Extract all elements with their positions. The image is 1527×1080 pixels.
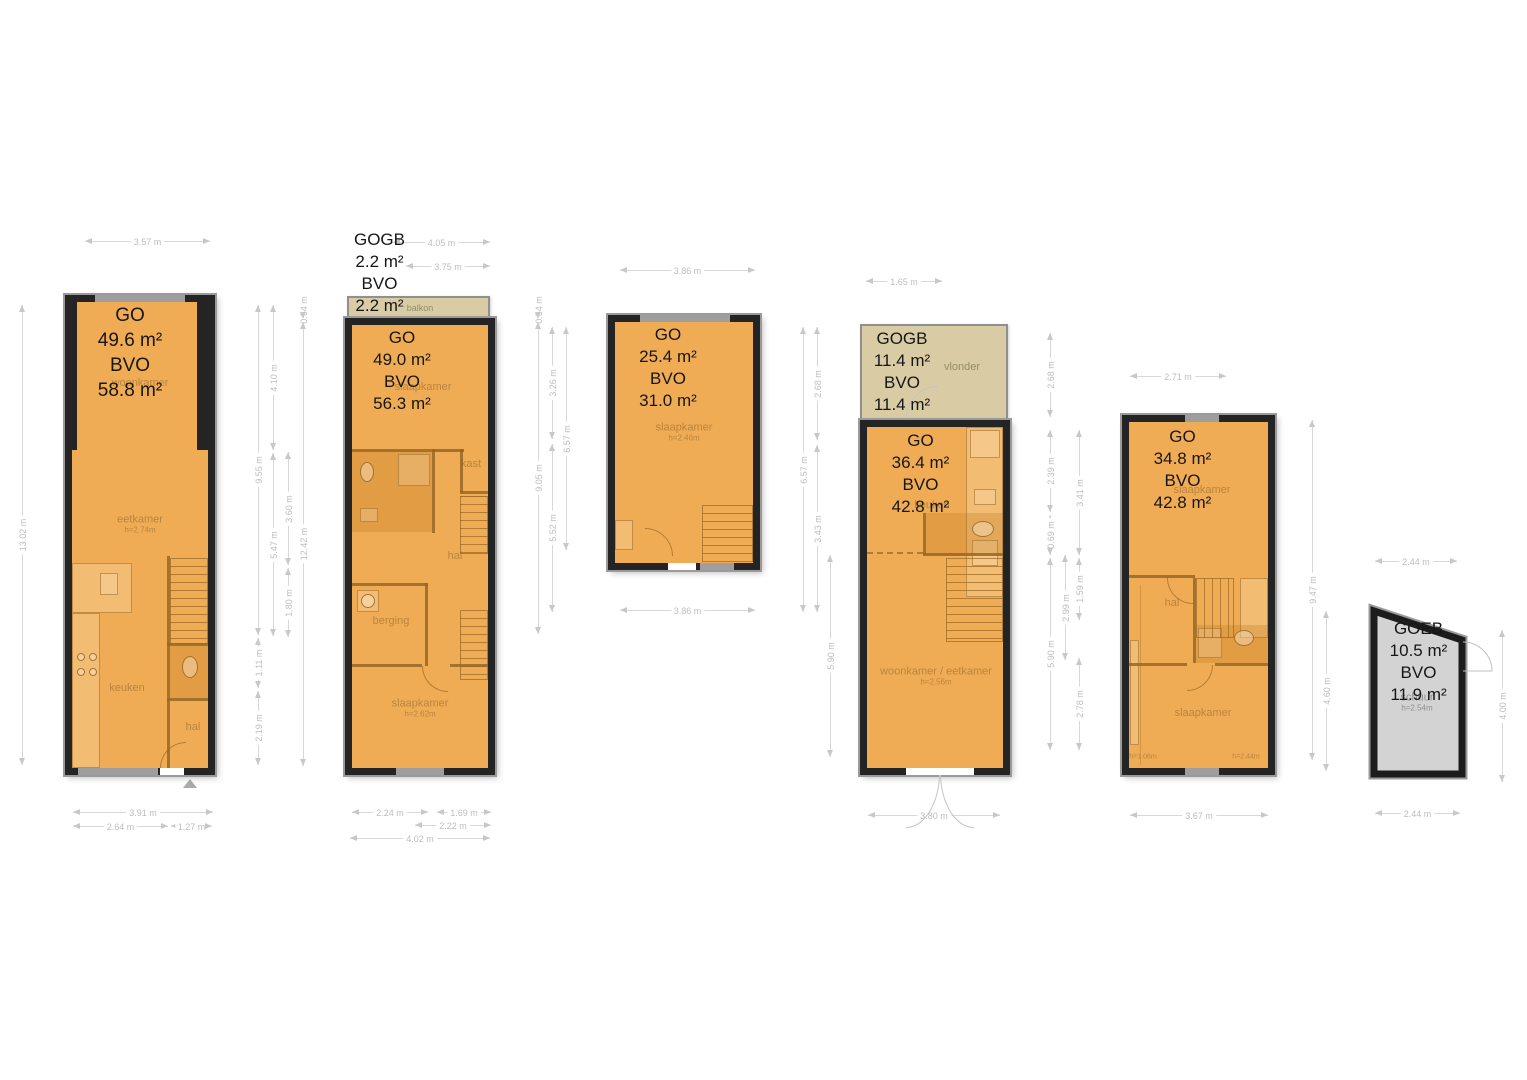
dim-line: 12.42 m	[303, 322, 304, 766]
window	[1185, 415, 1219, 422]
toilet	[360, 462, 374, 482]
dim-line: 1.27 m	[171, 826, 212, 827]
room-height: h=1.06m	[1129, 754, 1156, 761]
room-label-slaapkamer2: slaapkamer	[1175, 707, 1232, 719]
room-label-berging: berging	[373, 615, 410, 627]
kitchen-sink	[974, 489, 996, 505]
dim-line: 4.02 m	[350, 838, 490, 839]
dim-label: 2.64 m	[104, 822, 138, 832]
dim-label: 3.86 m	[671, 266, 705, 276]
partition-wall	[460, 449, 463, 493]
go-label: GO	[80, 303, 180, 328]
window	[640, 315, 730, 322]
partition-wall	[352, 449, 464, 452]
dim-line: 1.65 m	[866, 281, 942, 282]
door-opening	[906, 768, 974, 775]
go-value: 25.4 m²	[618, 346, 718, 368]
bvo-label: BVO	[1376, 662, 1461, 684]
stairs	[946, 558, 1003, 642]
room-label-hal: hal	[186, 721, 201, 733]
stairs	[702, 505, 753, 562]
dim-line: 6.57 m	[566, 327, 567, 550]
partition-wall	[1193, 578, 1196, 663]
dim-line: 0.54 m	[303, 300, 304, 319]
bvo-value: 11.4 m²	[862, 394, 942, 416]
dim-label: 5.52 m	[548, 511, 558, 545]
dim-label: 5.90 m	[826, 639, 836, 673]
partition-wall	[352, 664, 422, 667]
room-name: slaapkamer	[392, 698, 449, 710]
dim-label: 5.47 m	[269, 528, 279, 562]
room-label-slaapkamer: slaapkamerh=2.46m	[656, 422, 713, 443]
stove-burner	[77, 668, 85, 676]
dim-label: 5.90 m	[1046, 637, 1056, 671]
dim-line: 2.24 m	[352, 812, 428, 813]
stairs	[460, 496, 488, 554]
dim-line: 2.78 m	[1079, 658, 1080, 750]
room-label-slaapkamer2: slaapkamerh=2.62m	[392, 698, 449, 719]
cabinet	[615, 520, 633, 550]
dim-line: 3.86 m	[620, 610, 755, 611]
bvo-value: 42.8 m²	[1130, 492, 1235, 514]
go-label: GO	[1130, 426, 1235, 448]
room-name: slaapkamer	[656, 422, 713, 434]
dim-label: 2.44 m	[1401, 809, 1435, 819]
dim-label: 9.05 m	[534, 461, 544, 495]
area-label-plan1: GO 49.6 m² BVO 58.8 m²	[80, 303, 180, 403]
dim-line: 2.68 m	[1050, 333, 1051, 417]
dim-label: 13.02 m	[18, 516, 28, 555]
wall	[72, 302, 77, 450]
stove-burner	[89, 668, 97, 676]
dim-line: 5.90 m	[830, 555, 831, 757]
kitchen-counter	[72, 613, 100, 768]
window	[95, 295, 185, 302]
stairs	[1196, 578, 1234, 638]
room-label-hal: hal	[1165, 597, 1180, 609]
dim-label: 2.78 m	[1075, 687, 1085, 721]
dim-label: 4.00 m	[1498, 689, 1508, 723]
washer-drum	[361, 594, 375, 608]
dim-line: 2.44 m	[1375, 561, 1457, 562]
dim-label: 3.60 m	[284, 492, 294, 526]
partition-wall	[923, 553, 1003, 556]
partition-wall	[432, 449, 435, 533]
toilet	[182, 656, 198, 678]
sink	[360, 508, 378, 522]
dim-label: 2.22 m	[436, 821, 470, 831]
dim-line: 3.57 m	[85, 241, 210, 242]
go-label: GO	[868, 430, 973, 452]
dim-line: 0.54 m	[538, 300, 539, 319]
window	[78, 768, 158, 775]
partition-wall	[167, 698, 208, 701]
room-name: vlonder	[944, 361, 980, 373]
dim-line: 3.26 m	[552, 327, 553, 439]
dim-line: 9.47 m	[1312, 420, 1313, 760]
height-label: h=2.44m	[1232, 754, 1259, 761]
partition-wall	[1215, 663, 1268, 666]
dim-line: 2.19 m	[258, 691, 259, 765]
dim-label: 9.47 m	[1308, 573, 1318, 607]
dim-label: 3.67 m	[1182, 811, 1216, 821]
bvo-label: BVO	[352, 371, 452, 393]
goeb-value: 10.5 m²	[1376, 640, 1461, 662]
area-label-plan4: GO 36.4 m² BVO 42.8 m²	[868, 430, 973, 518]
dim-line: 13.02 m	[22, 305, 23, 765]
area-label-plan5: GO 34.8 m² BVO 42.8 m²	[1130, 426, 1235, 514]
bvo-label: BVO	[80, 353, 180, 378]
room-label-vlonder: vlonder	[944, 361, 980, 373]
room-name: hal	[186, 721, 201, 733]
dim-line: 2.22 m	[415, 825, 491, 826]
go-label: GO	[618, 324, 718, 346]
room-label-kast: kast	[461, 458, 481, 470]
stairs	[460, 610, 488, 680]
dim-label: 3.57 m	[131, 237, 165, 247]
go-label: GO	[352, 327, 452, 349]
sliding-door	[867, 552, 923, 554]
area-label-schuur: GOEB 10.5 m² BVO 11.9 m²	[1376, 618, 1461, 706]
dim-label: 2.24 m	[373, 808, 407, 818]
dim-label: 4.10 m	[269, 361, 279, 395]
area-label-vlonder: GOGB 11.4 m² BVO 11.4 m²	[862, 328, 942, 416]
shower	[398, 454, 430, 486]
room-height: h=2.46m	[656, 434, 713, 443]
dim-label: 2.68 m	[813, 367, 823, 401]
dim-line: 2.71 m	[1130, 376, 1226, 377]
partition-wall	[450, 664, 488, 667]
goeb-label: GOEB	[1376, 618, 1461, 640]
area-label-plan3: GO 25.4 m² BVO 31.0 m²	[618, 324, 718, 412]
dim-label: 4.02 m	[403, 834, 437, 844]
window	[396, 768, 444, 775]
dim-line: 2.64 m	[73, 826, 168, 827]
dim-line: 4.10 m	[273, 305, 274, 450]
toilet	[1234, 630, 1254, 646]
dim-line: 1.69 m	[437, 812, 491, 813]
go-value: 49.0 m²	[352, 349, 452, 371]
area-label-plan2: GO 49.0 m² BVO 56.3 m²	[352, 327, 452, 415]
window	[1185, 768, 1219, 775]
dim-label: 3.43 m	[813, 512, 823, 546]
dim-line: 3.43 m	[817, 445, 818, 612]
gogb-label: GOGB	[342, 229, 417, 251]
dim-line: 1.59 m	[1079, 558, 1080, 620]
wall	[197, 302, 208, 450]
room-height: h=2.44m	[1232, 754, 1259, 761]
dim-label: 3.41 m	[1075, 476, 1085, 510]
room-label-eetkamer: eetkamerh=2.74m	[117, 514, 163, 535]
dim-label: 6.57 m	[799, 453, 809, 487]
dim-label: 6.57 m	[562, 422, 572, 456]
kitchen-sink	[100, 573, 118, 595]
room-name: slaapkamer	[1175, 707, 1232, 719]
dim-line: 2.99 m	[1065, 555, 1066, 660]
bvo-value: 11.9 m²	[1376, 684, 1461, 706]
floorplan-sheet: 3.57 m GO 49.6 m² BVO 58.8 m² woonkamer …	[0, 0, 1527, 1080]
dim-label: 2.99 m	[1061, 591, 1071, 625]
stairs	[170, 558, 208, 644]
dim-line: 3.80 m	[868, 815, 1000, 816]
dim-label: 3.26 m	[548, 366, 558, 400]
go-value: 36.4 m²	[868, 452, 973, 474]
room-name: kast	[461, 458, 481, 470]
dim-label: 1.11 m	[254, 647, 264, 680]
dim-label: 0.69 m	[1046, 518, 1056, 552]
dim-label: 9.55 m	[254, 453, 264, 487]
dim-line: 9.05 m	[538, 322, 539, 634]
north-marker	[183, 779, 197, 788]
dim-label: 2.19 m	[254, 711, 264, 745]
bvo-label: BVO	[868, 474, 973, 496]
door-opening	[160, 768, 184, 775]
partition-wall	[352, 583, 428, 586]
dim-line: 6.57 m	[803, 327, 804, 612]
dim-line: 9.55 m	[258, 305, 259, 635]
room-label-hal: hal	[448, 550, 463, 562]
dim-label: 2.71 m	[1161, 372, 1195, 382]
bvo-value: 56.3 m²	[352, 393, 452, 415]
dim-line: 3.41 m	[1079, 430, 1080, 555]
dim-line: 4.00 m	[1502, 630, 1503, 782]
dim-line: 3.91 m	[73, 812, 213, 813]
dim-line: 5.52 m	[552, 444, 553, 612]
partition-wall	[923, 513, 926, 555]
dim-label: 1.65 m	[887, 277, 921, 287]
roof-line	[1140, 585, 1141, 765]
dim-line: 5.47 m	[273, 453, 274, 636]
dim-line: 3.75 m	[406, 266, 490, 267]
stove-burner	[89, 653, 97, 661]
partition-wall	[1129, 663, 1187, 666]
dim-label: 4.60 m	[1322, 674, 1332, 708]
partition-wall	[167, 556, 170, 768]
dim-label: 2.68 m	[1046, 358, 1056, 392]
room-label-woonkamer-eetkamer: woonkamer / eetkamerh=2.56m	[880, 666, 992, 687]
dim-line: 2.68 m	[817, 327, 818, 440]
dim-line: 3.67 m	[1130, 815, 1268, 816]
dim-label: 3.91 m	[126, 808, 160, 818]
room-height: h=2.56m	[880, 678, 992, 687]
room-height: h=2.62m	[392, 710, 449, 719]
bvo-value: 58.8 m²	[80, 378, 180, 403]
bvo-value: 2.2 m²	[342, 295, 417, 317]
stove-burner	[77, 653, 85, 661]
bvo-value: 31.0 m²	[618, 390, 718, 412]
dim-line: 5.90 m	[1050, 558, 1051, 750]
bvo-label: BVO	[862, 372, 942, 394]
dim-line: 3.86 m	[620, 270, 755, 271]
room-height: h=2.74m	[117, 526, 163, 535]
gogb-value: 11.4 m²	[862, 350, 942, 372]
door-opening	[668, 563, 696, 570]
dim-label: 4.05 m	[425, 238, 459, 248]
dim-label: 2.44 m	[1399, 557, 1433, 567]
dim-line: 2.39 m	[1050, 430, 1051, 512]
partition-wall	[460, 491, 488, 494]
dim-label: 3.86 m	[671, 606, 705, 616]
dim-label: 2.39 m	[1046, 454, 1056, 488]
go-value: 49.6 m²	[80, 328, 180, 353]
room-name: hal	[448, 550, 463, 562]
gogb-label: GOGB	[862, 328, 942, 350]
room-name: keuken	[109, 682, 144, 694]
dim-line: 4.60 m	[1326, 611, 1327, 771]
go-value: 34.8 m²	[1130, 448, 1235, 470]
window	[700, 563, 734, 570]
room-name: hal	[1165, 597, 1180, 609]
dim-line: 1.11 m	[258, 638, 259, 688]
partition-wall	[167, 643, 208, 646]
area-label-balkon: GOGB 2.2 m² BVO 2.2 m²	[342, 229, 417, 317]
dim-line: 3.60 m	[288, 452, 289, 565]
dim-label: 12.42 m	[299, 525, 309, 564]
dim-label: 1.80 m	[284, 586, 294, 620]
bvo-value: 42.8 m²	[868, 496, 973, 518]
dim-label: 1.69 m	[447, 808, 481, 818]
bvo-label: BVO	[1130, 470, 1235, 492]
dim-line: 2.44 m	[1375, 813, 1460, 814]
dim-line: 1.80 m	[288, 568, 289, 637]
partition-wall	[425, 583, 428, 666]
dim-label: 3.75 m	[431, 262, 465, 272]
room-label-keuken: keuken	[109, 682, 144, 694]
bvo-label: BVO	[342, 273, 417, 295]
room-name: woonkamer / eetkamer	[880, 666, 992, 678]
toilet	[972, 521, 994, 537]
bvo-label: BVO	[618, 368, 718, 390]
closet	[1130, 640, 1139, 745]
room-name: berging	[373, 615, 410, 627]
fridge	[970, 430, 1000, 458]
room-name: eetkamer	[117, 514, 163, 526]
dim-label: 1.59 m	[1075, 572, 1085, 606]
dim-line: 0.69 m	[1050, 515, 1051, 555]
dim-label: 1.27 m	[175, 822, 209, 832]
height-label: h=1.06m	[1129, 754, 1156, 761]
gogb-value: 2.2 m²	[342, 251, 417, 273]
